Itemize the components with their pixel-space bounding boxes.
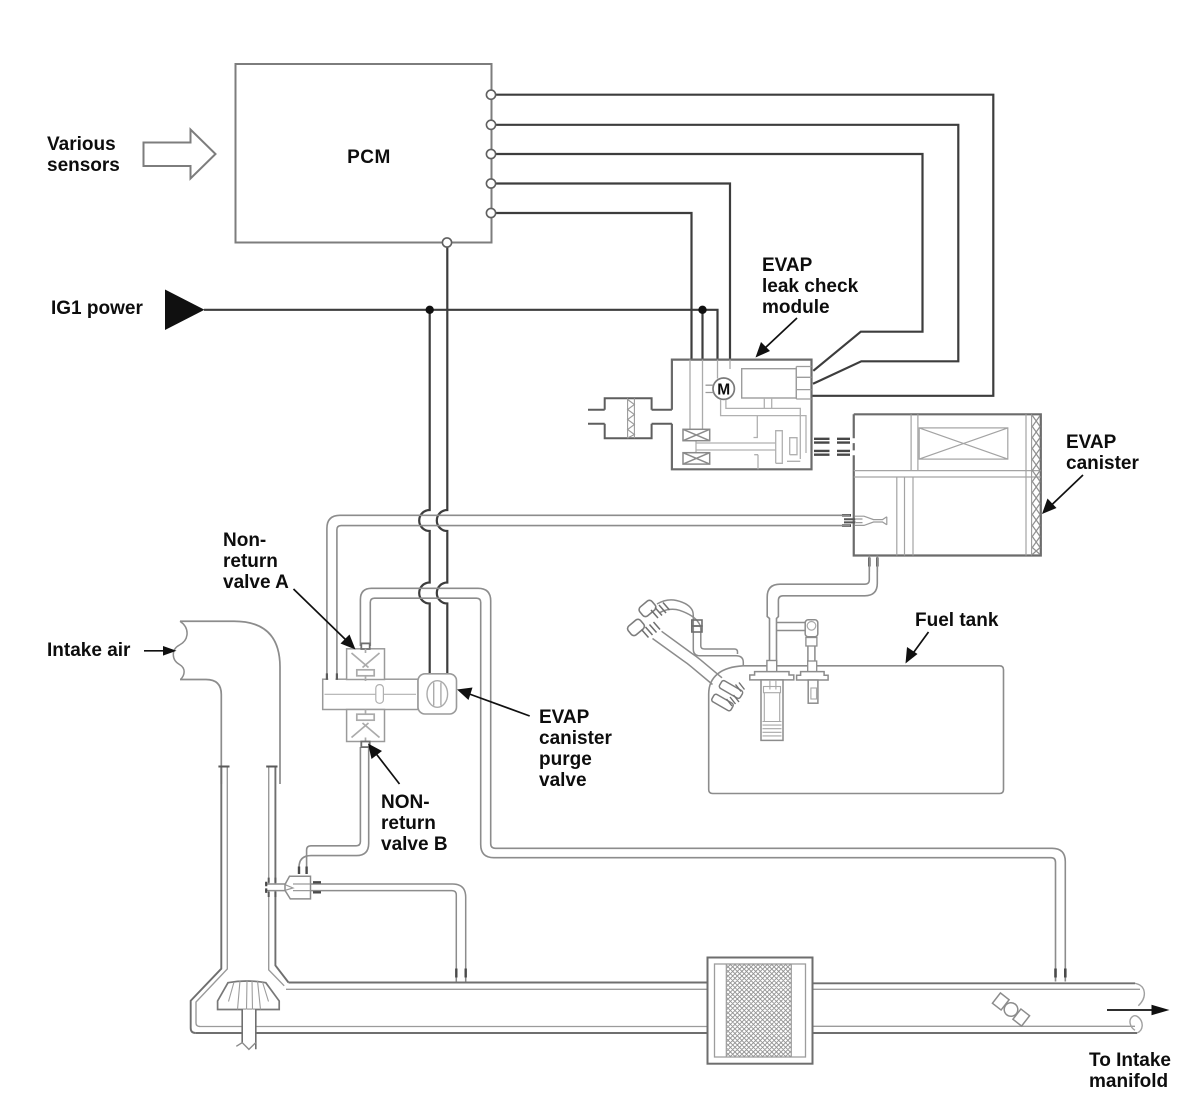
svg-text:Non-: Non- [223, 530, 266, 551]
svg-text:return: return [381, 813, 436, 834]
svg-text:EVAP: EVAP [762, 255, 813, 276]
svg-text:canister: canister [539, 728, 612, 749]
svg-text:NON-: NON- [381, 792, 430, 813]
svg-text:leak check: leak check [762, 276, 859, 297]
svg-text:manifold: manifold [1089, 1071, 1168, 1092]
svg-text:valve: valve [539, 770, 587, 791]
svg-text:PCM: PCM [347, 147, 391, 168]
svg-text:Fuel tank: Fuel tank [915, 610, 999, 631]
svg-text:Various: Various [47, 134, 116, 155]
svg-text:purge: purge [539, 749, 592, 770]
svg-text:sensors: sensors [47, 155, 120, 176]
svg-text:To Intake: To Intake [1089, 1050, 1171, 1071]
svg-text:return: return [223, 551, 278, 572]
svg-text:EVAP: EVAP [1066, 432, 1117, 453]
svg-text:valve A: valve A [223, 572, 289, 593]
svg-text:Intake air: Intake air [47, 640, 131, 661]
svg-text:EVAP: EVAP [539, 707, 590, 728]
svg-text:valve B: valve B [381, 834, 448, 855]
svg-text:IG1 power: IG1 power [51, 298, 143, 319]
svg-text:module: module [762, 297, 830, 318]
svg-text:M: M [717, 381, 730, 398]
svg-text:canister: canister [1066, 453, 1139, 474]
